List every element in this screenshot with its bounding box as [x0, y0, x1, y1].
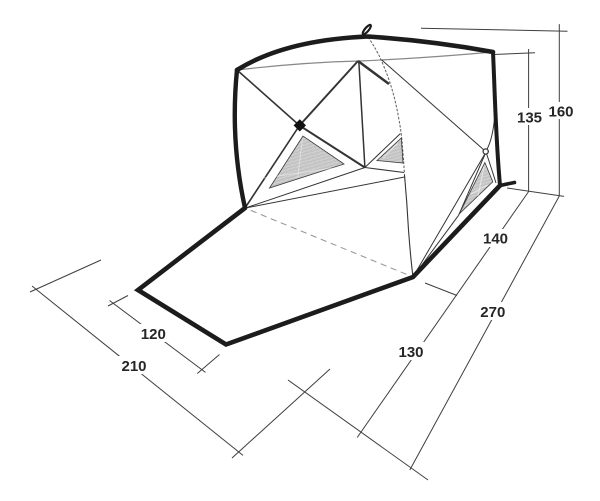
svg-text:270: 270: [480, 304, 505, 321]
svg-text:140: 140: [483, 231, 508, 248]
svg-text:135: 135: [517, 109, 542, 126]
svg-text:130: 130: [398, 344, 423, 361]
svg-text:120: 120: [141, 326, 166, 343]
svg-text:160: 160: [548, 103, 573, 120]
svg-text:210: 210: [121, 358, 146, 375]
